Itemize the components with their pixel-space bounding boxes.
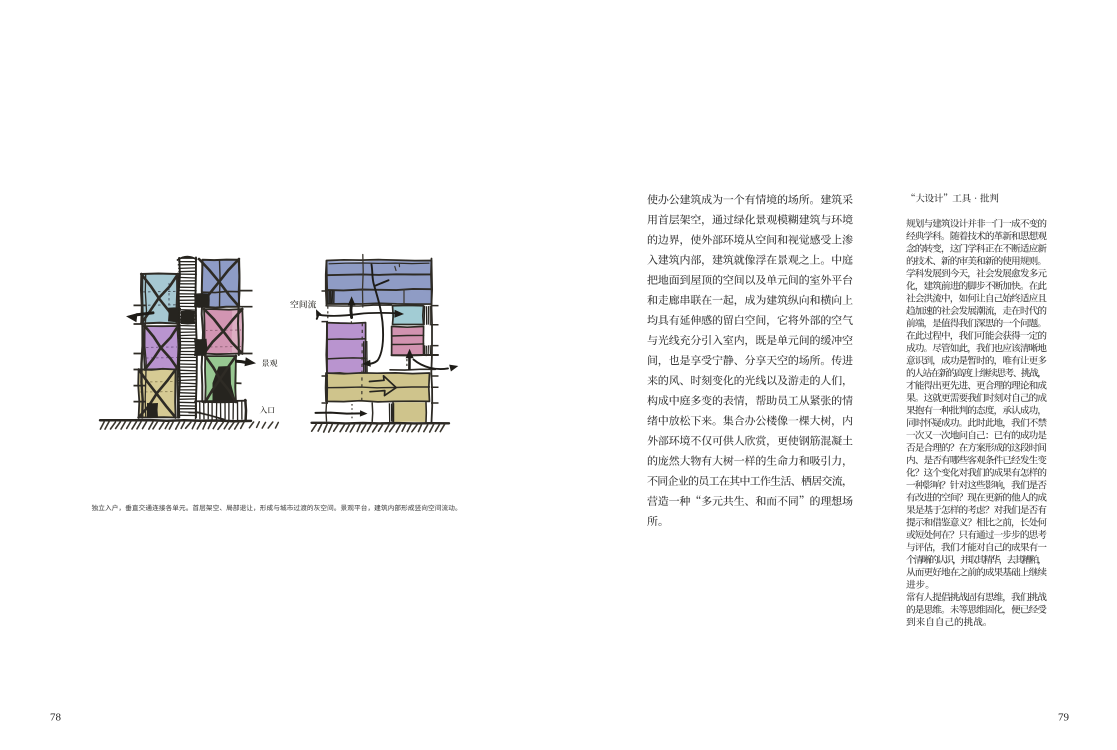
- svg-text:78: 78: [50, 712, 62, 724]
- svg-text:79: 79: [1058, 712, 1070, 724]
